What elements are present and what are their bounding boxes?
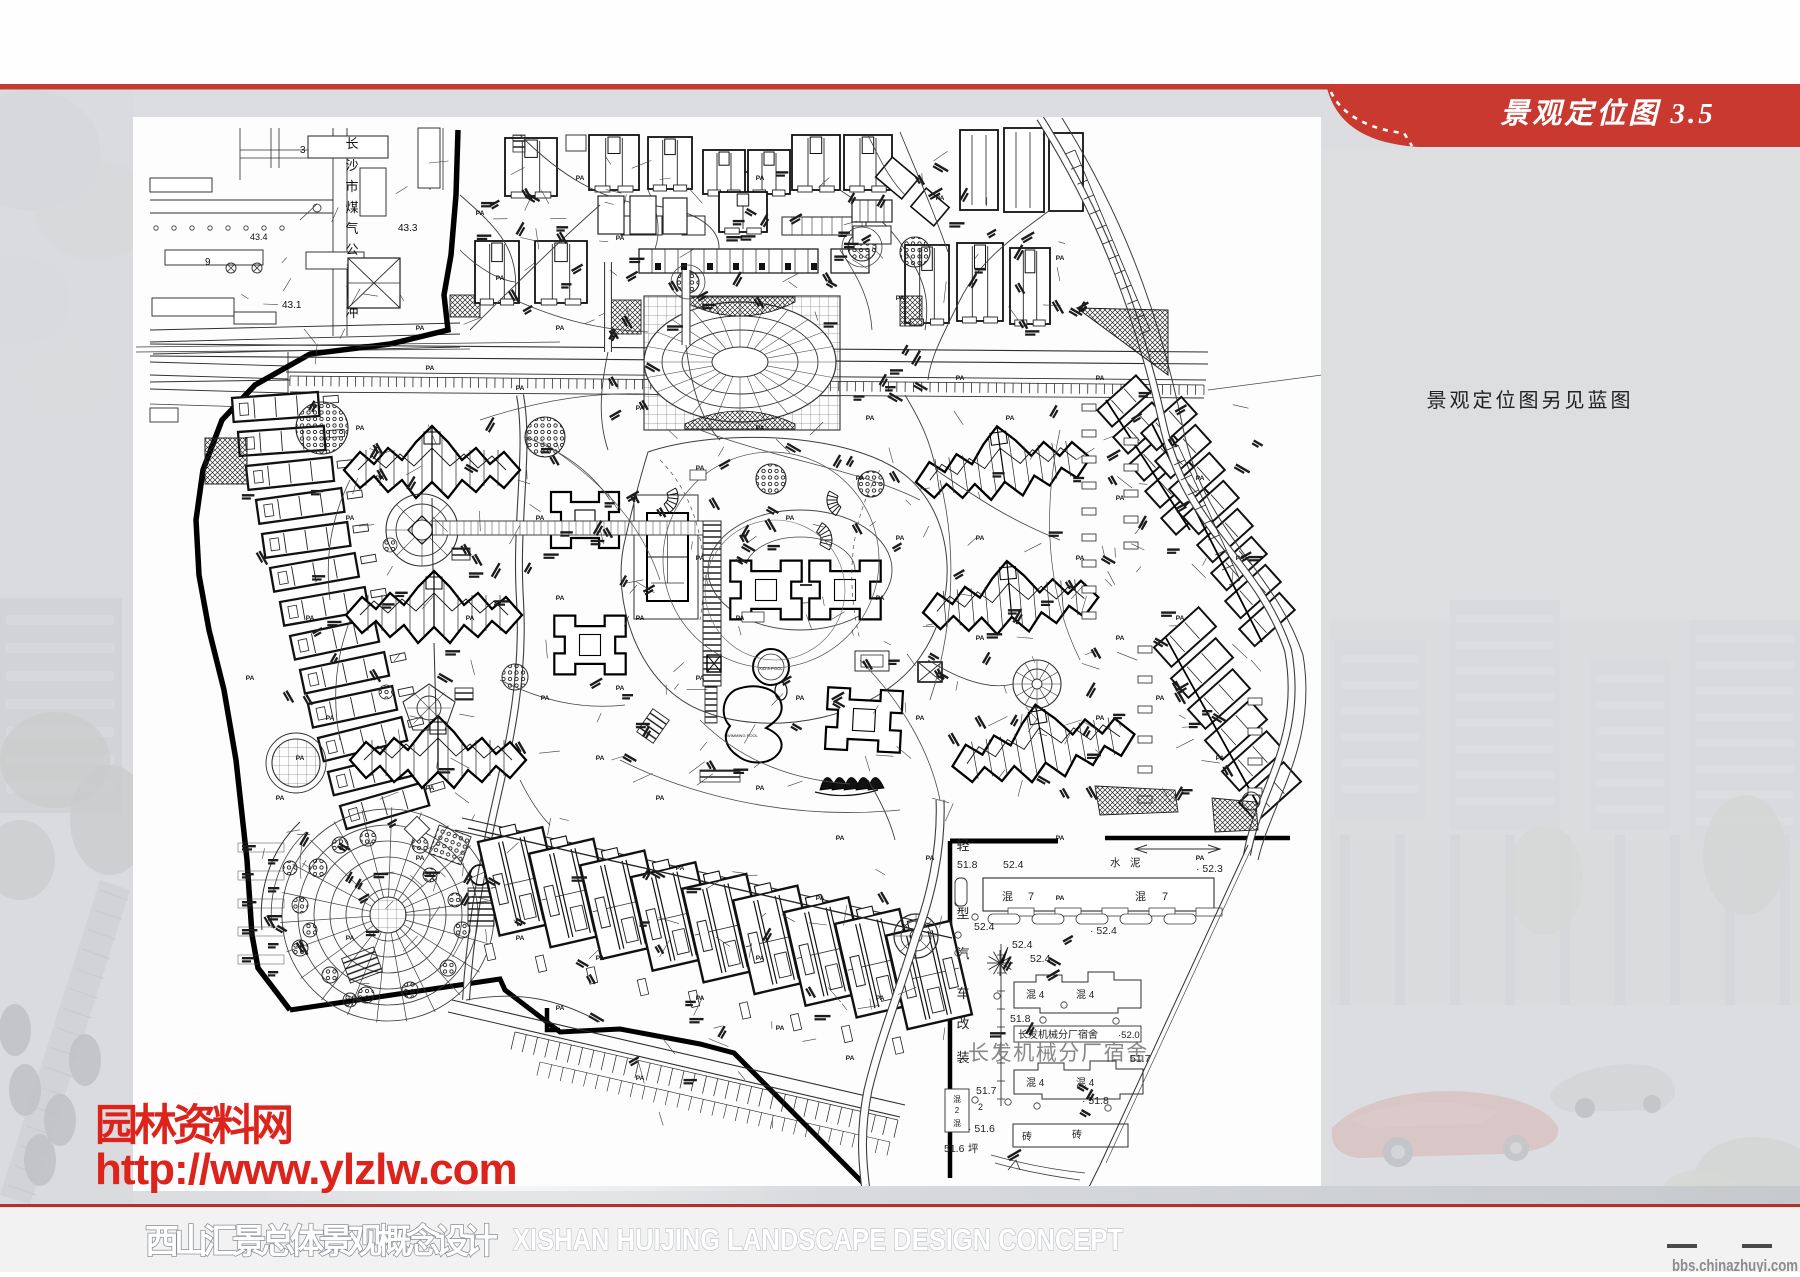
svg-text:7: 7: [1162, 891, 1168, 903]
svg-text:PA: PA: [956, 375, 965, 382]
svg-text:PA: PA: [306, 615, 315, 622]
svg-text:混: 混: [1135, 890, 1146, 903]
svg-text:发: 发: [991, 1041, 1012, 1065]
svg-text:PA: PA: [1056, 835, 1065, 842]
svg-text:PA: PA: [896, 535, 905, 542]
svg-text:PA: PA: [426, 365, 435, 372]
svg-text:混: 混: [1002, 890, 1013, 903]
svg-text:PA: PA: [636, 405, 645, 412]
svg-text:PA: PA: [736, 615, 745, 622]
svg-text:坪: 坪: [968, 1142, 979, 1155]
svg-text:PA: PA: [426, 785, 435, 792]
svg-text:PA: PA: [776, 1025, 785, 1032]
svg-text:bbs.chinazhuyi.com: bbs.chinazhuyi.com: [1672, 1257, 1798, 1272]
svg-text:PA: PA: [476, 210, 485, 217]
svg-text:51.8: 51.8: [1010, 1013, 1031, 1025]
svg-text:52.4: 52.4: [1030, 953, 1051, 965]
svg-text:混: 混: [953, 1095, 961, 1104]
svg-text:轻: 轻: [956, 838, 969, 853]
svg-text:PA: PA: [466, 615, 475, 622]
svg-text:PA: PA: [696, 555, 705, 562]
svg-text:PA: PA: [376, 475, 385, 482]
svg-text:车: 车: [956, 986, 969, 1001]
svg-text:PA: PA: [1196, 855, 1205, 862]
svg-text:PA: PA: [756, 425, 765, 432]
svg-text:混: 混: [953, 1119, 961, 1128]
svg-text:PA: PA: [696, 995, 705, 1002]
svg-text:PA: PA: [276, 795, 285, 802]
svg-text:PA: PA: [346, 515, 355, 522]
svg-text:混 4: 混 4: [1026, 989, 1045, 1001]
svg-text:PA: PA: [1096, 715, 1105, 722]
svg-text:· 51.8: · 51.8: [1082, 1095, 1109, 1107]
svg-text:泥: 泥: [1130, 856, 1141, 869]
svg-text:52.4: 52.4: [1003, 859, 1024, 871]
svg-text:型: 型: [956, 906, 969, 921]
svg-text:沙: 沙: [345, 158, 358, 173]
svg-text:PA: PA: [896, 295, 905, 302]
svg-text:SWIMMING POOL: SWIMMING POOL: [724, 733, 758, 738]
svg-text:PA: PA: [876, 995, 885, 1002]
svg-text:装: 装: [956, 1050, 969, 1065]
svg-text:PA: PA: [816, 895, 825, 902]
svg-text:PA: PA: [786, 515, 795, 522]
svg-text:PA: PA: [1006, 415, 1015, 422]
svg-text:43.4: 43.4: [250, 232, 268, 242]
svg-text:· 51.6: · 51.6: [968, 1123, 995, 1135]
svg-text:PA: PA: [416, 855, 425, 862]
svg-text:气: 气: [345, 221, 358, 236]
svg-text:3: 3: [300, 145, 306, 156]
svg-text:PA: PA: [596, 955, 605, 962]
svg-text:改: 改: [956, 1016, 969, 1031]
svg-text:PA: PA: [796, 695, 805, 702]
svg-text:混 4: 混 4: [1076, 989, 1095, 1001]
svg-text:PA: PA: [696, 675, 705, 682]
svg-text:PA: PA: [696, 465, 705, 472]
svg-text:51.8: 51.8: [957, 859, 978, 871]
svg-text:煤: 煤: [345, 200, 358, 215]
svg-text:西山汇景总体景观概念设计: 西山汇景总体景观概念设计: [145, 1222, 498, 1261]
svg-text:PA: PA: [246, 675, 255, 682]
svg-text:51.6: 51.6: [944, 1143, 965, 1155]
svg-text:PA: PA: [346, 935, 355, 942]
svg-text:PA: PA: [636, 615, 645, 622]
svg-text:PA: PA: [856, 475, 865, 482]
svg-text:PA: PA: [1216, 755, 1225, 762]
svg-text:PA: PA: [416, 325, 425, 332]
svg-text:水: 水: [1110, 857, 1121, 869]
svg-text:PA: PA: [516, 935, 525, 942]
svg-text:http://www.ylzlw.com: http://www.ylzlw.com: [95, 1145, 517, 1194]
svg-text:PA: PA: [1196, 475, 1205, 482]
svg-text:PA: PA: [926, 855, 935, 862]
svg-text:PA: PA: [556, 1005, 565, 1012]
svg-text:9: 9: [205, 257, 211, 268]
svg-text:PA: PA: [536, 515, 545, 522]
svg-text:混 4: 混 4: [1026, 1077, 1045, 1089]
svg-text:52.4: 52.4: [974, 921, 995, 933]
svg-text:公: 公: [345, 242, 358, 257]
svg-text:PA: PA: [556, 325, 565, 332]
svg-text:园林资料网: 园林资料网: [95, 1102, 292, 1150]
svg-text:汽: 汽: [956, 946, 969, 961]
svg-text:PA: PA: [756, 785, 765, 792]
svg-text:51.7: 51.7: [976, 1085, 997, 1097]
svg-text:PA: PA: [876, 595, 885, 602]
svg-text:PA: PA: [976, 535, 985, 542]
svg-text:PA: PA: [756, 175, 765, 182]
svg-text:PA: PA: [976, 635, 985, 642]
svg-text:PA: PA: [356, 425, 365, 432]
svg-text:XISHAN HUIJING LANDSCAPE DESIG: XISHAN HUIJING LANDSCAPE DESIGN CONCEPT: [513, 1222, 1123, 1257]
svg-text:景观定位图 3.5: 景观定位图 3.5: [1500, 97, 1716, 130]
svg-text:PA: PA: [516, 385, 525, 392]
svg-text:PA: PA: [1076, 555, 1085, 562]
svg-text:市: 市: [345, 179, 358, 194]
svg-text:PA: PA: [836, 835, 845, 842]
svg-text:PA: PA: [636, 1075, 645, 1082]
svg-text:PA: PA: [846, 1055, 855, 1062]
svg-text:43.1: 43.1: [282, 300, 302, 311]
svg-text:PA: PA: [936, 195, 945, 202]
svg-text:7: 7: [1028, 891, 1034, 903]
svg-text:PA: PA: [916, 715, 925, 722]
svg-text:PA: PA: [296, 755, 305, 762]
svg-text:PA: PA: [541, 695, 550, 702]
svg-text:长: 长: [968, 1041, 989, 1065]
svg-text:PA: PA: [1056, 255, 1065, 262]
svg-text:PA: PA: [1056, 895, 1065, 902]
svg-text:械: 械: [1036, 1041, 1057, 1065]
svg-text:PA: PA: [656, 795, 665, 802]
svg-text:PA: PA: [676, 865, 685, 872]
svg-text:分: 分: [1058, 1041, 1079, 1065]
svg-text:PA: PA: [556, 595, 565, 602]
svg-text:砖: 砖: [1022, 1130, 1032, 1143]
svg-text:43.3: 43.3: [398, 223, 418, 234]
svg-text:PA: PA: [576, 175, 585, 182]
svg-text:52.4: 52.4: [1012, 939, 1033, 951]
svg-text:· 52.3: · 52.3: [1196, 863, 1223, 875]
svg-text:PA: PA: [1116, 495, 1125, 502]
svg-text:PA: PA: [1236, 555, 1245, 562]
svg-text:2: 2: [978, 1102, 983, 1112]
svg-text:KID'S POOL: KID'S POOL: [759, 666, 783, 671]
svg-text:PA: PA: [326, 715, 335, 722]
svg-text:· 52.4: · 52.4: [1090, 925, 1117, 937]
svg-text:机: 机: [1013, 1041, 1034, 1065]
svg-text:PA: PA: [1156, 695, 1165, 702]
svg-text:景观定位图另见蓝图: 景观定位图另见蓝图: [1427, 389, 1634, 412]
svg-text:·52.0: ·52.0: [1118, 1030, 1140, 1041]
svg-text:PA: PA: [616, 685, 625, 692]
svg-text:PA: PA: [616, 235, 625, 242]
svg-text:PA: PA: [1176, 615, 1185, 622]
svg-text:PA: PA: [496, 275, 505, 282]
svg-text:PA: PA: [756, 955, 765, 962]
svg-text:PA: PA: [1096, 375, 1105, 382]
svg-text:PA: PA: [596, 755, 605, 762]
svg-text:PA: PA: [1116, 635, 1125, 642]
svg-text:砖: 砖: [1072, 1128, 1082, 1141]
svg-text:长: 长: [345, 136, 358, 151]
svg-text:2: 2: [955, 1106, 960, 1115]
svg-text:PA: PA: [866, 415, 875, 422]
